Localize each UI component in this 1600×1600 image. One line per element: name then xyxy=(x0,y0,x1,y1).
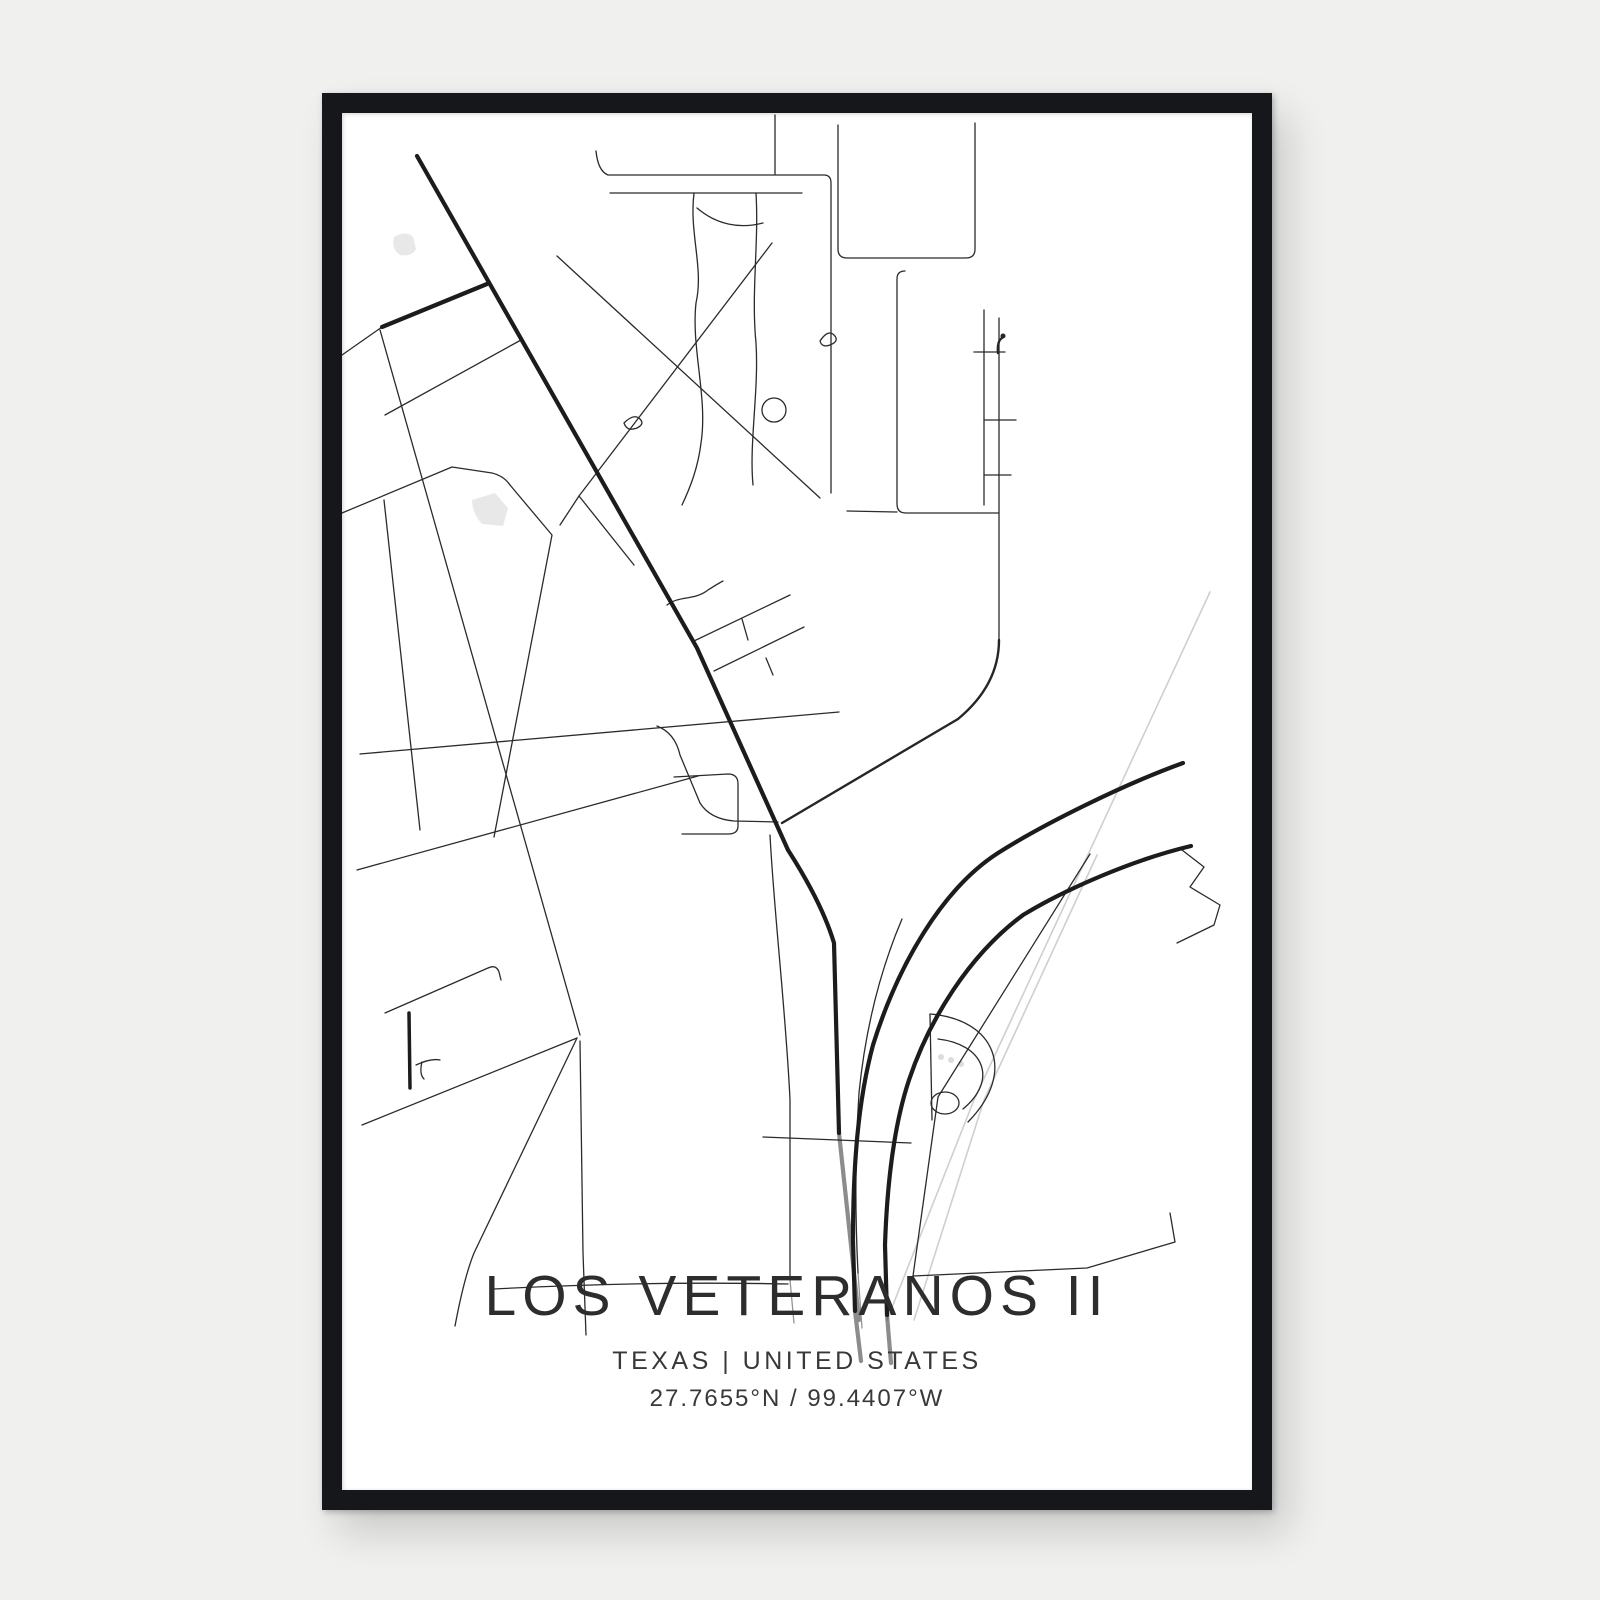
poster-subtitle: TEXAS | UNITED STATES xyxy=(342,1347,1252,1376)
map-railroad xyxy=(887,592,1210,1320)
poster: LOS VETERANOS II TEXAS | UNITED STATES 2… xyxy=(342,113,1252,1490)
map-main-roads xyxy=(382,156,1191,1315)
poster-coordinates: 27.7655°N / 99.4407°W xyxy=(342,1385,1252,1413)
map-water-areas xyxy=(393,234,964,1068)
page-background: LOS VETERANOS II TEXAS | UNITED STATES 2… xyxy=(0,0,1600,1600)
poster-title: LOS VETERANOS II xyxy=(342,1263,1252,1329)
map-medium-roads xyxy=(782,334,1006,824)
poster-frame: LOS VETERANOS II TEXAS | UNITED STATES 2… xyxy=(322,93,1272,1510)
map-streets xyxy=(342,115,1220,1335)
